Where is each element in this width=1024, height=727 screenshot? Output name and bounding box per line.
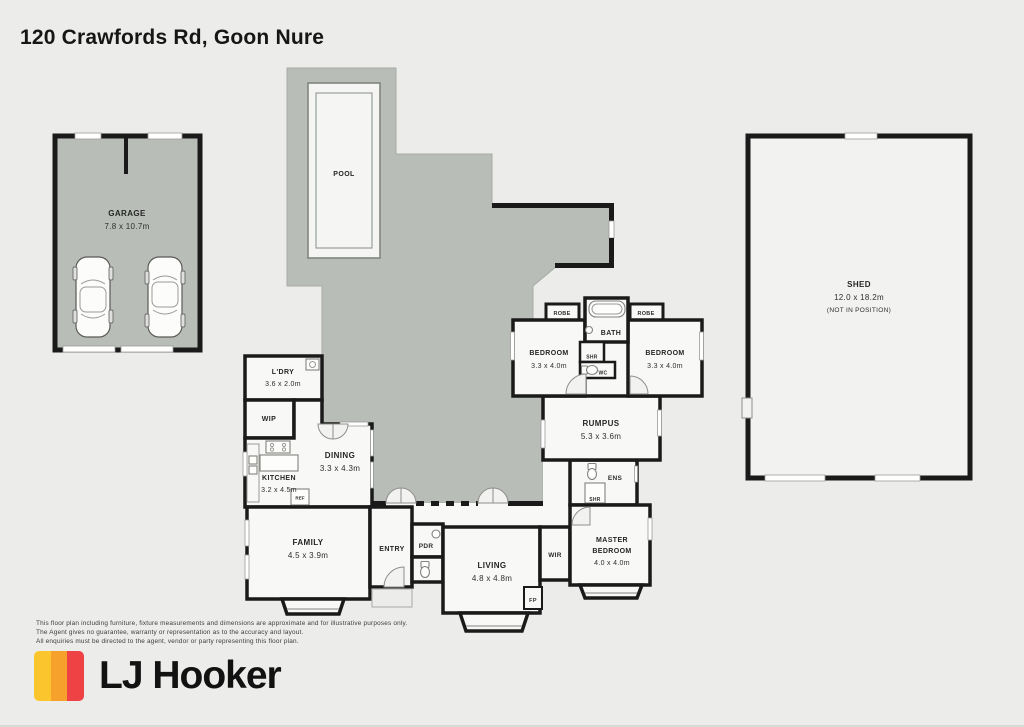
car-icon <box>145 257 185 337</box>
family-dims: 4.5 x 3.9m <box>288 551 328 560</box>
window <box>541 420 545 448</box>
bay-window <box>282 599 344 614</box>
family-label: FAMILY <box>293 538 324 547</box>
brand-logo: LJ Hooker <box>34 651 281 701</box>
washer-icon <box>306 359 319 370</box>
fp-label: FP <box>529 598 537 604</box>
dining-label: DINING <box>325 451 355 460</box>
window <box>648 518 652 540</box>
master-label-2: BEDROOM <box>592 548 631 555</box>
wir-label: WIR <box>548 552 562 559</box>
robe2-label: ROBE <box>637 311 654 317</box>
window <box>765 475 825 481</box>
wc-label: WC <box>599 371 608 377</box>
window <box>371 462 374 488</box>
window <box>658 410 662 436</box>
bath-label: BATH <box>601 330 622 337</box>
window <box>371 430 374 456</box>
ens-label: ENS <box>608 475 623 482</box>
bay-window <box>580 585 642 598</box>
master-dims: 4.0 x 4.0m <box>594 560 630 567</box>
rumpus-wing: RUMPUS 5.3 x 3.6m <box>541 396 662 460</box>
window <box>700 332 704 360</box>
living-dims: 4.8 x 4.8m <box>472 574 512 583</box>
brand-stripes-icon <box>34 651 84 701</box>
garage-dims: 7.8 x 10.7m <box>104 222 149 231</box>
shed-door <box>742 398 752 418</box>
garage-door <box>121 346 173 352</box>
garage-door <box>63 346 115 352</box>
dining-dims: 3.3 x 4.3m <box>320 464 360 473</box>
pool-label: POOL <box>333 171 355 178</box>
room-pdr <box>412 524 443 557</box>
window <box>245 555 249 579</box>
sink-icon <box>249 466 257 474</box>
floor-plan-page: 120 Crawfords Rd, Goon Nure <box>0 0 1024 727</box>
garage-divider-wall <box>124 136 128 174</box>
shed-dims: 12.0 x 18.2m <box>834 293 884 302</box>
entry-label: ENTRY <box>379 546 404 553</box>
disclaimer-line-3: All enquiries must be directed to the ag… <box>36 637 407 646</box>
car-icon <box>73 257 113 337</box>
floor-plan-svg: GARAGE 7.8 x 10.7m POOL SHED 12.0 x 18. <box>0 0 1024 725</box>
family-entry: FAMILY 4.5 x 3.9m ENTRY PDR <box>245 507 443 614</box>
ref-label: REF <box>295 496 304 501</box>
bedroom2-dims: 3.3 x 4.0m <box>647 363 683 370</box>
bay-window <box>460 613 528 631</box>
rumpus-dims: 5.3 x 3.6m <box>581 432 621 441</box>
robe1-label: ROBE <box>553 311 570 317</box>
shr-bath-label: SHR <box>586 355 598 361</box>
window <box>875 475 920 481</box>
room-rumpus <box>543 396 660 460</box>
window <box>635 466 638 482</box>
garage-area: GARAGE 7.8 x 10.7m <box>55 133 200 352</box>
disclaimer-line-2: The Agent gives no guarantee, warranty o… <box>36 628 407 637</box>
shed-area: SHED 12.0 x 18.2m (NOT IN POSITION) <box>742 133 970 481</box>
shed-note: (NOT IN POSITION) <box>827 307 891 314</box>
laundry-dims: 3.6 x 2.0m <box>265 381 301 388</box>
laundry-label: L'DRY <box>272 369 294 376</box>
window <box>609 221 614 238</box>
window <box>243 452 247 476</box>
basin-icon <box>432 530 440 538</box>
window <box>148 133 182 139</box>
disclaimer: This floor plan including furniture, fix… <box>36 619 407 646</box>
wip-label: WIP <box>262 416 276 423</box>
basin-icon <box>586 327 593 334</box>
porch <box>372 589 412 607</box>
shed-label: SHED <box>847 280 871 289</box>
master-label-1: MASTER <box>596 537 628 544</box>
garage-label: GARAGE <box>108 209 146 218</box>
toilet-icon <box>582 366 598 375</box>
window <box>245 520 249 546</box>
shr-ens-label: SHR <box>589 497 601 503</box>
toilet-icon <box>421 562 430 578</box>
disclaimer-line-1: This floor plan including furniture, fix… <box>36 619 407 628</box>
rumpus-label: RUMPUS <box>582 419 619 428</box>
kitchen-dims: 3.2 x 4.5m <box>261 487 297 494</box>
window <box>75 133 101 139</box>
brand-name: LJ Hooker <box>99 654 281 698</box>
bathtub-icon <box>589 301 625 317</box>
bedroom2-label: BEDROOM <box>645 350 684 357</box>
sink-icon <box>249 456 257 464</box>
living-wing: LIVING 4.8 x 4.8m FP WIR <box>443 527 570 631</box>
living-label: LIVING <box>477 561 506 570</box>
kitchen-island <box>260 455 298 471</box>
window <box>511 332 515 360</box>
toilet-icon <box>588 464 597 480</box>
stove-icon <box>266 441 290 453</box>
master-wing: ENS SHR MASTER BEDROOM 4.0 x 4.0m <box>570 460 652 598</box>
window <box>845 133 877 139</box>
bedroom1-dims: 3.3 x 4.0m <box>531 363 567 370</box>
bedroom1-label: BEDROOM <box>529 350 568 357</box>
pdr-label: PDR <box>419 543 434 550</box>
kitchen-label: KITCHEN <box>262 475 296 482</box>
